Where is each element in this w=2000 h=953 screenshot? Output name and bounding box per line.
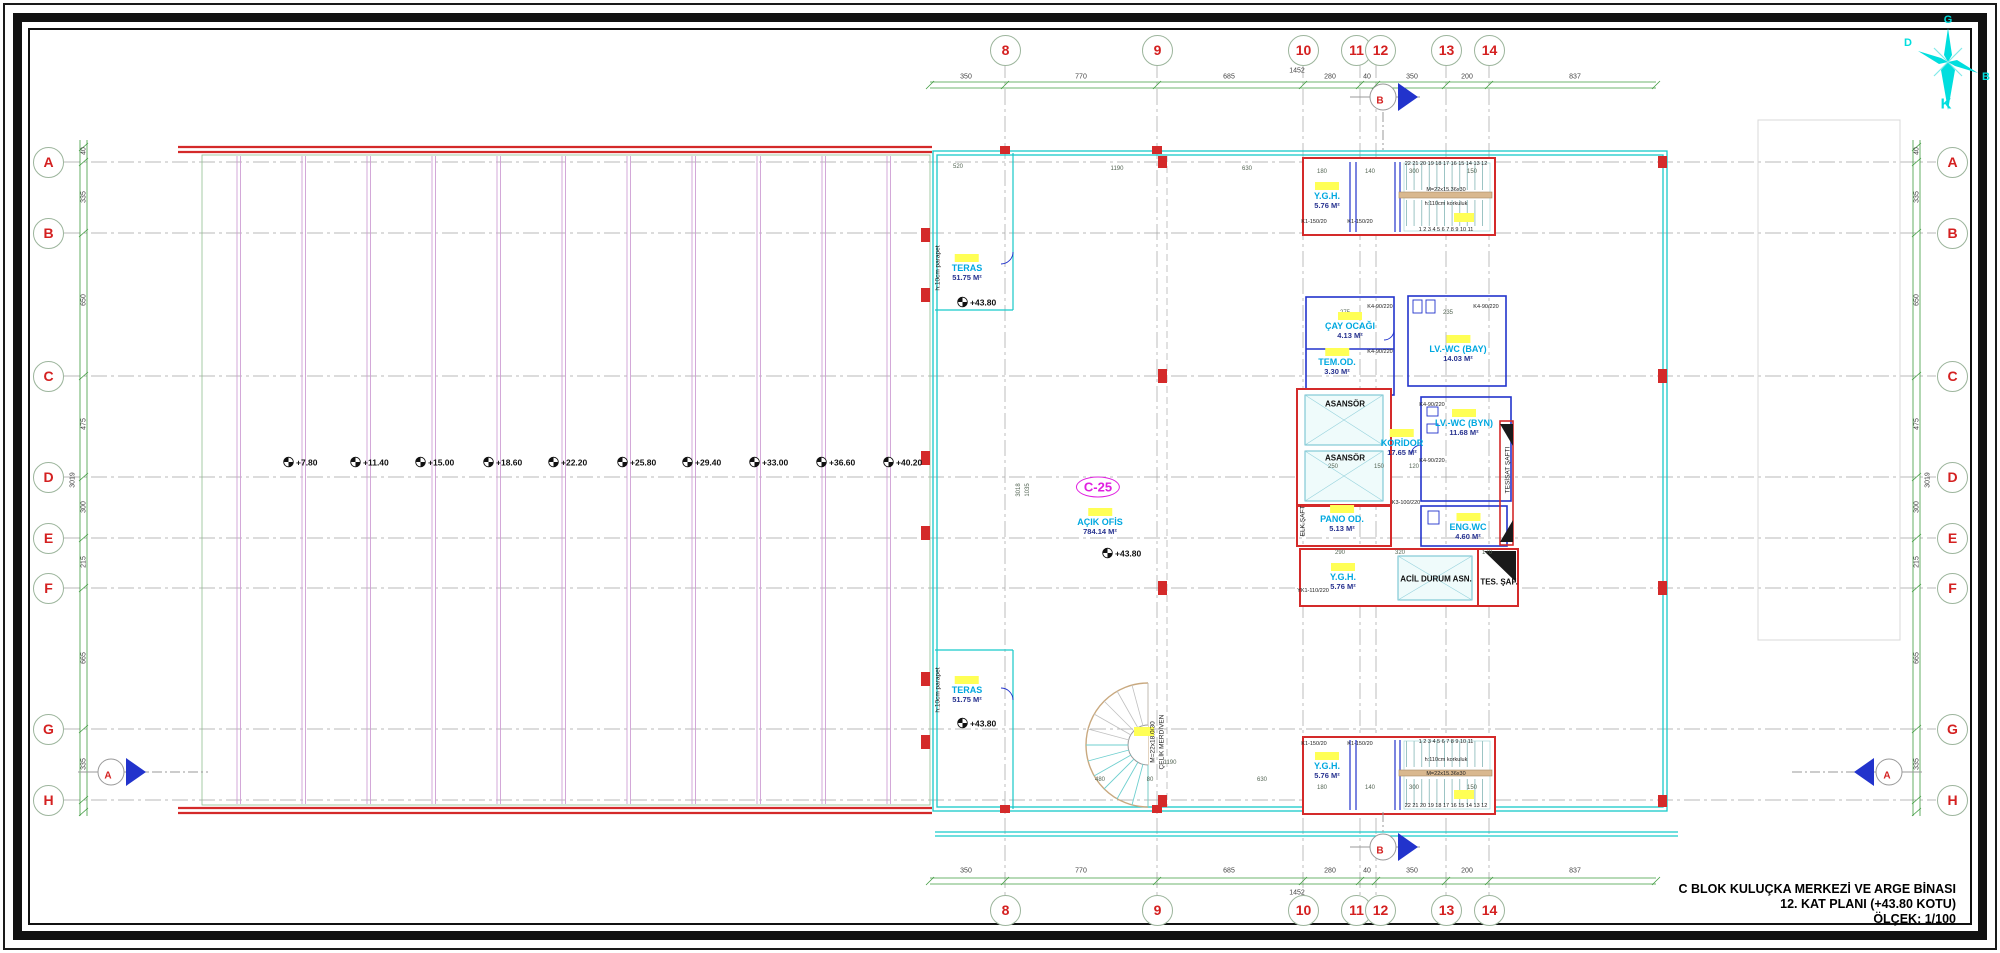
interior-dimension-value: 140 (1365, 169, 1375, 175)
room-number-highlight (1325, 348, 1349, 356)
level-value: +40.20 (896, 457, 922, 467)
level-value: +7.80 (296, 457, 318, 467)
room-name: Y.G.H. (1330, 572, 1356, 582)
level-marker: +18.60 (483, 457, 522, 468)
grid-row-bubble: C (1937, 361, 1968, 392)
vertical-label: ELK.ŞAFT (1300, 506, 1307, 537)
vertical-label: M=22x18.0/30 (1150, 721, 1157, 762)
room-label: Y.G.H. 5.76 M² (1314, 752, 1340, 780)
vertical-label: ÇELİK MERDİVEN (1159, 715, 1166, 770)
level-marker: +15.00 (415, 457, 454, 468)
compass-letter-right: B (1982, 71, 1990, 83)
grid-column-bubble: 12 (1365, 895, 1396, 926)
level-value: +36.60 (829, 457, 855, 467)
interior-dimension-value: 80 (1147, 777, 1154, 783)
dimension-value: 837 (1568, 868, 1582, 875)
interior-dimension-value: 300 (1409, 785, 1419, 791)
room-label: KORİDOR 17.65 M² (1381, 429, 1424, 457)
room-number-highlight (1456, 513, 1480, 521)
level-marker: +36.60 (816, 457, 855, 468)
room-label: Y.G.H. 5.76 M² (1330, 563, 1356, 591)
grid-column-bubble: 10 (1288, 895, 1319, 926)
room-area: 14.03 M² (1429, 354, 1486, 363)
dimension-value: 665 (1914, 652, 1921, 664)
annotation-label: K1-150/20 (1347, 219, 1372, 225)
terrace-beam-lines (237, 156, 891, 804)
room-label: LV.-WC (BAY) 14.03 M² (1429, 335, 1486, 363)
grid-row-bubble: A (1937, 147, 1968, 178)
dimension-value: 300 (81, 501, 88, 513)
grid-column-bubble: 9 (1142, 895, 1173, 926)
interior-dimension-value: 180 (1317, 169, 1327, 175)
level-marker: +43.80 (1102, 548, 1141, 559)
interior-dimension-value: 290 (1335, 550, 1345, 556)
room-label: ÇAY OCAĞI 4.13 M² (1325, 312, 1375, 340)
interior-dimension-value: 630 (1242, 166, 1252, 172)
room-name: ÇAY OCAĞI (1325, 321, 1375, 331)
grid-row-bubble: G (1937, 714, 1968, 745)
title-block: C BLOK KULUÇKA MERKEZİ VE ARGE BİNASI 12… (1678, 882, 1956, 927)
section-marker-b-bottom (1350, 830, 1422, 864)
grid-row-bubble: H (33, 785, 64, 816)
interior-dimension-value: 180 (1317, 785, 1327, 791)
room-label: AÇIK OFİS 784.14 M² (1077, 508, 1123, 536)
interior-dimension-value: 150 (1374, 464, 1384, 470)
level-value: +33.00 (762, 457, 788, 467)
dimension-lines (79, 81, 1921, 885)
dimension-value: 475 (1914, 418, 1921, 430)
room-name: KORİDOR (1381, 438, 1424, 448)
annotation-label: h:110cm korkuluk (1425, 757, 1468, 763)
grid-column-bubble: 13 (1431, 35, 1462, 66)
interior-dimension-value: 320 (1395, 550, 1405, 556)
level-marker-icon (749, 457, 760, 468)
section-marker-a-left (78, 755, 150, 789)
annotation-label: 1 2 3 4 5 6 7 8 9 10 11 (1419, 227, 1474, 233)
section-arrow-icon (126, 758, 146, 786)
room-name: TEM.OD. (1318, 357, 1356, 367)
level-marker-icon (548, 457, 559, 468)
room-name: Y.G.H. (1314, 191, 1340, 201)
dimension-total: 3019 (70, 472, 77, 488)
compass-letter-left: D (1904, 37, 1912, 49)
dimension-value: 475 (81, 418, 88, 430)
terrace-area (178, 147, 932, 813)
grid-row-bubble: D (33, 462, 64, 493)
room-label: ENG.WC 4.60 M² (1450, 513, 1487, 541)
level-marker-icon (816, 457, 827, 468)
dimension-value: 280 (1323, 868, 1337, 875)
annotation-label: h:110cm korkuluk (1425, 201, 1468, 207)
room-number-highlight (1390, 429, 1414, 437)
room-label-plain: ACİL DURUM ASN. (1400, 575, 1472, 584)
grid-row-bubble: B (1937, 218, 1968, 249)
dimension-value: 770 (1074, 74, 1088, 81)
level-marker-icon (283, 457, 294, 468)
columns (921, 146, 1667, 813)
annotation-label: K1-150/20 (1301, 219, 1326, 225)
vertical-label: TESİSAT ŞAFTI (1505, 447, 1512, 494)
grid-row-bubble: F (1937, 573, 1968, 604)
dimension-value: 350 (959, 868, 973, 875)
room-name: AÇIK OFİS (1077, 517, 1123, 527)
annotation-label: 1 2 3 4 5 6 7 8 9 10 11 (1419, 739, 1474, 745)
room-number-highlight (1088, 508, 1112, 516)
grid-row-bubble: G (33, 714, 64, 745)
interior-dimension-value: 480 (1095, 777, 1105, 783)
dimension-value: 40 (1914, 147, 1921, 155)
grid-row-bubble: A (33, 147, 64, 178)
compass-letter-bottom: K (1941, 96, 1952, 113)
room-name: PANO OD. (1320, 514, 1364, 524)
level-value: +15.00 (428, 457, 454, 467)
dimension-value: 650 (1914, 294, 1921, 306)
floor-plan-sheet: 891011121314 891011121314 ABCDEFGH ABCDE… (0, 0, 2000, 953)
annotation-label: 22 21 20 19 18 17 16 15 14 13 12 (1405, 161, 1488, 167)
grid-column-bubble: 14 (1474, 895, 1505, 926)
level-value: +43.80 (1115, 548, 1141, 558)
dimension-value: 685 (1222, 868, 1236, 875)
room-area: 4.13 M² (1325, 331, 1375, 340)
interior-dimension-value: 170 (1482, 550, 1492, 556)
grid-row-bubble: H (1937, 785, 1968, 816)
level-marker: +43.80 (957, 718, 996, 729)
level-value: +29.40 (695, 457, 721, 467)
section-arrow-icon (1854, 758, 1874, 786)
room-area: 51.75 M² (952, 695, 983, 704)
level-value: +43.80 (970, 297, 996, 307)
compass-letter-top: G (1944, 14, 1953, 26)
section-letter: B (1376, 96, 1383, 107)
section-arrow-icon (1398, 833, 1418, 861)
dimension-value: 837 (1568, 74, 1582, 81)
level-marker: +22.20 (548, 457, 587, 468)
room-label-plain: TES. ŞAF. (1480, 578, 1517, 587)
annotation-label: K4-90/220 (1367, 304, 1392, 310)
section-arrow-icon (1398, 83, 1418, 111)
level-marker-icon (957, 718, 968, 729)
annotation-label: K3-100/220 (1392, 500, 1420, 506)
room-area: 5.76 M² (1314, 201, 1340, 210)
grid-row-bubble: C (33, 361, 64, 392)
room-label: TERAS 51.75 M² (952, 254, 983, 282)
dimension-value: 40 (81, 147, 88, 155)
room-number-highlight (1330, 505, 1354, 513)
room-name: Y.G.H. (1314, 761, 1340, 771)
annotation-label: K1-150/20 (1301, 741, 1326, 747)
level-value: +22.20 (561, 457, 587, 467)
level-value: +25.80 (630, 457, 656, 467)
level-marker: +25.80 (617, 457, 656, 468)
annotation-label: K4-90/220 (1419, 458, 1444, 464)
annotation-label: K1-150/20 (1347, 741, 1372, 747)
level-marker: +33.00 (749, 457, 788, 468)
level-marker: +43.80 (957, 297, 996, 308)
plan-drawing (0, 0, 2000, 953)
level-marker-icon (350, 457, 361, 468)
room-area: 17.65 M² (1381, 448, 1424, 457)
section-letter: A (1883, 771, 1890, 782)
level-marker: +7.80 (283, 457, 318, 468)
title-project: C BLOK KULUÇKA MERKEZİ VE ARGE BİNASI (1678, 882, 1956, 897)
interior-dimension-value: 630 (1257, 777, 1267, 783)
interior-dimension-value: 1035 (1025, 483, 1031, 496)
spiral-stair (1086, 683, 1154, 807)
dimension-value: 200 (1460, 868, 1474, 875)
dimension-value: 280 (1323, 74, 1337, 81)
level-marker: +11.40 (350, 457, 389, 468)
level-value: +18.60 (496, 457, 522, 467)
section-marker-b-top (1350, 80, 1422, 114)
interior-dimension-value: 150 (1467, 169, 1477, 175)
room-name: TERAS (952, 263, 983, 273)
interior-dimension-value: 150 (1467, 785, 1477, 791)
level-marker: +29.40 (682, 457, 721, 468)
grid-column-bubble: 8 (990, 35, 1021, 66)
dimension-total: 1452 (1289, 68, 1305, 75)
interior-dimension-value: 235 (1443, 310, 1453, 316)
level-marker: +40.20 (883, 457, 922, 468)
room-label: Y.G.H. 5.76 M² (1314, 182, 1340, 210)
room-number-highlight (955, 254, 979, 262)
annotation-label: M=22x15.36x30 (1426, 771, 1465, 777)
level-marker-icon (883, 457, 894, 468)
grid-row-bubble: F (33, 573, 64, 604)
interior-dimension-value: 1190 (1111, 166, 1124, 172)
section-letter: B (1376, 846, 1383, 857)
dimension-value: 770 (1074, 868, 1088, 875)
room-label-plain: ASANSÖR (1325, 400, 1365, 409)
annotation-label: K4-90/220 (1367, 349, 1392, 355)
room-number-highlight (1446, 335, 1470, 343)
room-label-plain: ASANSÖR (1325, 454, 1365, 463)
level-marker-icon (617, 457, 628, 468)
room-label: LV.-WC (BYN) 11.68 M² (1435, 409, 1493, 437)
neighbor-block-outline (1758, 120, 1900, 640)
room-area: 3.30 M² (1318, 367, 1356, 376)
room-label: PANO OD. 5.13 M² (1320, 505, 1364, 533)
grid-column-bubble: 8 (990, 895, 1021, 926)
room-area: 51.75 M² (952, 273, 983, 282)
annotation-label: K4-90/220 (1419, 402, 1444, 408)
room-number-highlight (1338, 312, 1362, 320)
grid-column-bubble: 13 (1431, 895, 1462, 926)
room-area: 784.14 M² (1077, 527, 1123, 536)
level-marker-icon (415, 457, 426, 468)
unit-badge: C-25 (1076, 477, 1120, 498)
terrace-parapet-walls (178, 147, 932, 813)
dimension-value: 40 (1362, 868, 1372, 875)
dimension-value: 350 (959, 74, 973, 81)
annotation-label: 22 21 20 19 18 17 16 15 14 13 12 (1405, 803, 1488, 809)
wc-rooms (1001, 252, 1511, 700)
section-dash-lines (134, 112, 1866, 832)
room-label: TERAS 51.75 M² (952, 676, 983, 704)
dimension-value: 215 (1914, 556, 1921, 568)
room-name: LV.-WC (BYN) (1435, 418, 1493, 428)
room-area: 5.76 M² (1314, 771, 1340, 780)
interior-dimension-value: 520 (953, 164, 963, 170)
annotation-label: M=22x15.36x30 (1426, 187, 1465, 193)
room-number-highlight (955, 676, 979, 684)
room-label: TEM.OD. 3.30 M² (1318, 348, 1356, 376)
level-marker-icon (483, 457, 494, 468)
dimension-value: 665 (81, 652, 88, 664)
room-area: 5.13 M² (1320, 524, 1364, 533)
grid-column-bubble: 10 (1288, 35, 1319, 66)
room-area: 11.68 M² (1435, 428, 1493, 437)
grid-column-bubble: 12 (1365, 35, 1396, 66)
level-marker-icon (682, 457, 693, 468)
title-scale: ÖLÇEK: 1/100 (1678, 912, 1956, 927)
dimension-value: 215 (81, 556, 88, 568)
grid-row-bubble: E (1937, 523, 1968, 554)
room-area: 4.60 M² (1450, 532, 1487, 541)
room-number-highlight (1331, 563, 1355, 571)
level-marker-icon (1102, 548, 1113, 559)
level-marker-icon (957, 297, 968, 308)
dimension-value: 350 (1405, 868, 1419, 875)
interior-dimension-value: 300 (1409, 169, 1419, 175)
level-value: +11.40 (363, 457, 389, 467)
dimension-value: 685 (1222, 74, 1236, 81)
teras-partitions (935, 153, 1013, 809)
grid-row-bubble: E (33, 523, 64, 554)
grid-lines (64, 62, 1936, 898)
annotation-label: YK1-110/220 (1297, 588, 1329, 594)
room-number-highlight (1315, 752, 1339, 760)
dimension-value: 200 (1460, 74, 1474, 81)
level-value: +43.80 (970, 718, 996, 728)
room-number-highlight (1315, 182, 1339, 190)
dimension-value: 335 (1914, 191, 1921, 203)
interior-dimension-value: 3018 (1016, 483, 1022, 496)
room-name: LV.-WC (BAY) (1429, 344, 1486, 354)
interior-dimension-value: 120 (1409, 464, 1419, 470)
annotation-label: K4-90/220 (1473, 304, 1498, 310)
room-name: ENG.WC (1450, 522, 1487, 532)
title-floor: 12. KAT PLANI (+43.80 KOTU) (1678, 897, 1956, 912)
room-area: 5.76 M² (1330, 582, 1356, 591)
grid-column-bubble: 9 (1142, 35, 1173, 66)
dimension-total: 3019 (1925, 472, 1932, 488)
grid-column-bubble: 14 (1474, 35, 1505, 66)
dimension-value: 300 (1914, 501, 1921, 513)
dimension-ticks (79, 81, 1921, 885)
grid-row-bubble: B (33, 218, 64, 249)
interior-dimension-value: 250 (1328, 464, 1338, 470)
vertical-label: h:10cm parapet (935, 245, 942, 290)
room-number-highlight (1452, 409, 1476, 417)
vertical-label: h:10cm parapet (935, 667, 942, 712)
dimension-value: 335 (81, 191, 88, 203)
room-name: TERAS (952, 685, 983, 695)
section-letter: A (104, 771, 111, 782)
dimension-value: 650 (81, 294, 88, 306)
grid-row-bubble: D (1937, 462, 1968, 493)
interior-dimension-value: 140 (1365, 785, 1375, 791)
